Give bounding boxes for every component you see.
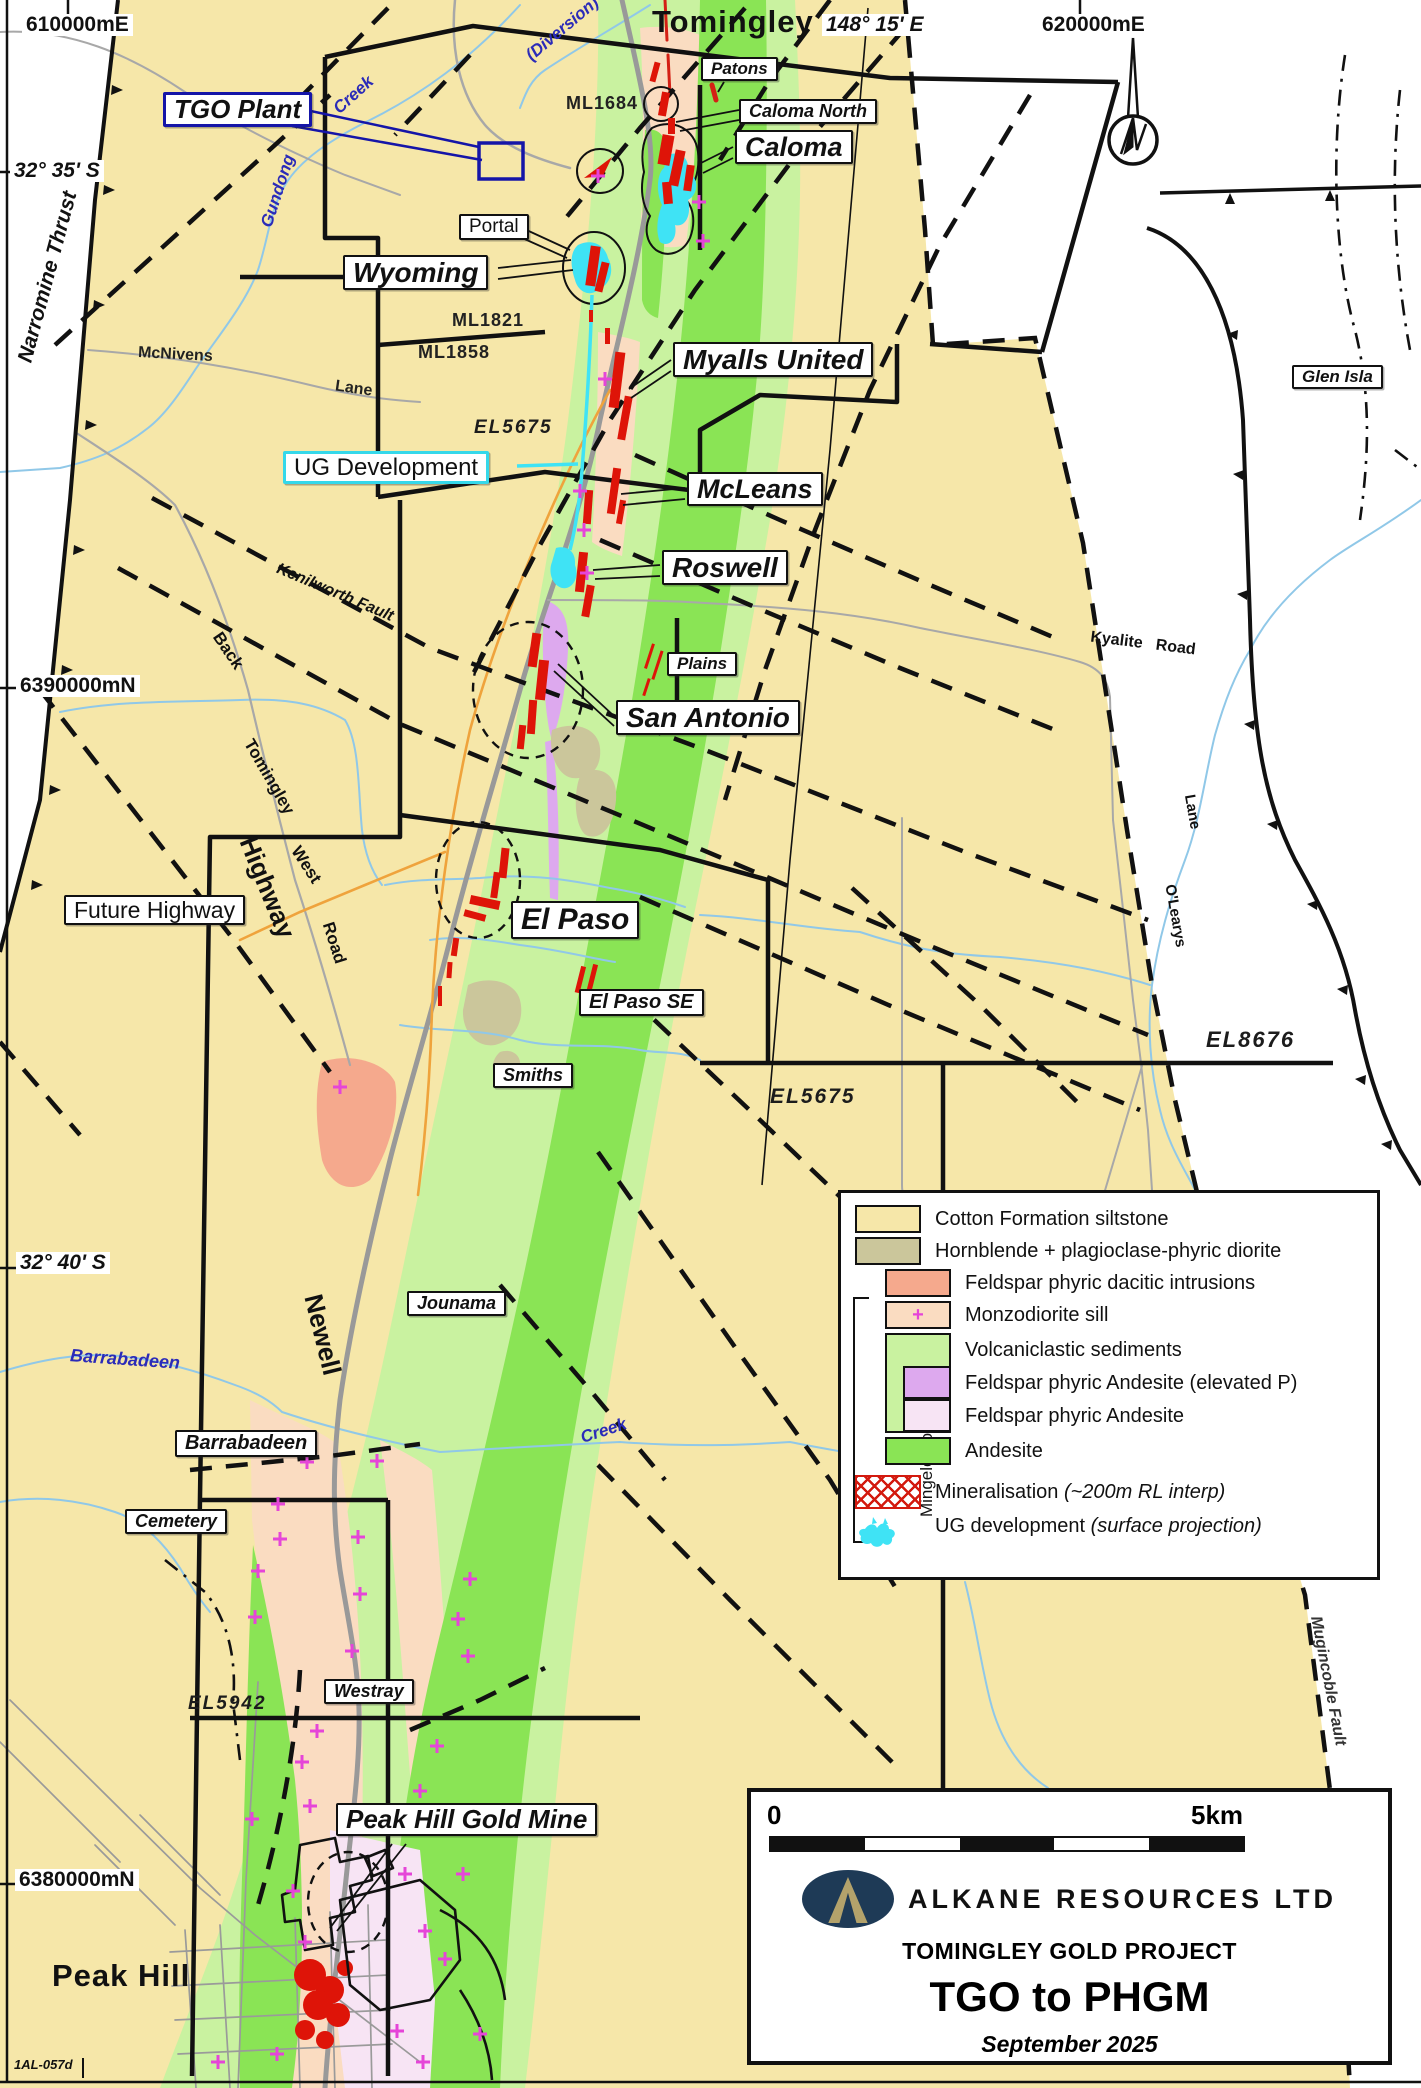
map-title: TGO to PHGM [751, 1973, 1388, 2021]
label-cemetery: Cemetery [125, 1509, 227, 1534]
label-peak-hill-gold-mine: Peak Hill Gold Mine [336, 1803, 597, 1836]
label-westray: Westray [324, 1679, 414, 1704]
scale-bar-row: 0 5km [751, 1792, 1388, 1856]
label-barrabadeen: Barrabadeen [175, 1430, 317, 1457]
legend-label-feldspar-andesite: Feldspar phyric Andesite [965, 1400, 1297, 1433]
swatch-andesite [885, 1437, 951, 1465]
legend-row-andesite: Andesite [885, 1437, 1367, 1465]
swatch-cotton [855, 1205, 921, 1233]
legend-row-volcaniclastic-stack: Volcaniclastic sediments Feldspar phyric… [885, 1333, 1367, 1433]
label-caloma: Caloma [735, 130, 853, 164]
ug-label-connector [517, 464, 578, 466]
legend-label-mineralisation: Mineralisation (~200m RL interp) [935, 1481, 1225, 1504]
label-smiths: Smiths [493, 1063, 573, 1088]
legend-row-dacitic: Feldspar phyric dacitic intrusions [885, 1269, 1367, 1297]
grid-northing-south: 6380000mN [15, 1869, 139, 1891]
label-patons: Patons [701, 57, 778, 81]
legend-row-mineralisation: Mineralisation (~200m RL interp) [855, 1475, 1367, 1509]
legend-row-hornblende: Hornblende + plagioclase-phyric diorite [855, 1237, 1367, 1265]
grid-easting-east: 620000mE [1038, 14, 1149, 36]
tenement-el8676: EL8676 [1206, 1028, 1295, 1051]
company-name: ALKANE RESOURCES LTD [908, 1884, 1337, 1915]
legend-label-hornblende: Hornblende + plagioclase-phyric diorite [935, 1240, 1281, 1263]
map-date: September 2025 [751, 2031, 1388, 2058]
label-el-paso: El Paso [511, 901, 639, 939]
tenement-ml1684: ML1684 [566, 94, 638, 113]
grid-northing-north: 6390000mN [16, 675, 140, 697]
label-plains: Plains [667, 652, 737, 676]
map-footnote: 1AL-057d [14, 2058, 73, 2072]
scale-start-label: 0 [767, 1800, 781, 1831]
alkane-logo-icon [802, 1870, 894, 1928]
legend-row-monzodiorite: + Monzodiorite sill [885, 1301, 1367, 1329]
tenement-el5675-north: EL5675 [474, 418, 553, 438]
label-caloma-north: Caloma North [739, 99, 877, 124]
legend-label-dacitic: Feldspar phyric dacitic intrusions [965, 1272, 1255, 1295]
legend-label-cotton: Cotton Formation siltstone [935, 1208, 1168, 1231]
swatch-dacitic [885, 1269, 951, 1297]
label-roswell: Roswell [662, 550, 788, 585]
label-san-antonio: San Antonio [616, 700, 800, 735]
label-myalls-united: Myalls United [673, 342, 873, 377]
label-jounama: Jounama [407, 1291, 506, 1316]
grid-lat-north: 32° 35' S [10, 160, 104, 182]
label-wyoming: Wyoming [343, 255, 488, 290]
label-ug-development: UG Development [283, 451, 489, 484]
legend-label-andesite: Andesite [965, 1440, 1043, 1463]
project-name: TOMINGLEY GOLD PROJECT [751, 1938, 1388, 1965]
tenement-ml1821: ML1821 [452, 311, 524, 330]
legend-label-monzodiorite: Monzodiorite sill [965, 1304, 1108, 1327]
title-block: 0 5km ALKANE RESOURCES LTD TOMINGLEY GOL… [747, 1788, 1392, 2065]
ug-development-swatch-icon [855, 1515, 901, 1549]
swatch-hornblende [855, 1237, 921, 1265]
swatch-andesite-elevated [903, 1366, 951, 1399]
swatch-monzodiorite: + [885, 1301, 951, 1329]
grid-lat-south: 32° 40' S [16, 1252, 110, 1274]
town-peak-hill: Peak Hill [52, 1960, 190, 1993]
map-stage: 610000mE 620000mE 148° 15' E 32° 35' S 6… [0, 0, 1421, 2088]
legend-row-cotton: Cotton Formation siltstone [855, 1205, 1367, 1233]
legend-box: Mingelo Volcanics Cotton Formation silts… [838, 1190, 1380, 1580]
legend-row-ug: UG development (surface projection) [855, 1515, 1367, 1538]
tenement-el5942: EL5942 [188, 1694, 267, 1714]
grid-longitude: 148° 15' E [822, 14, 927, 36]
tenement-el5675-south: EL5675 [770, 1086, 856, 1108]
label-mcleans: McLeans [687, 472, 823, 506]
swatch-mineralisation [855, 1475, 921, 1509]
brand-row: ALKANE RESOURCES LTD [751, 1870, 1388, 1928]
scale-bar [769, 1836, 1245, 1852]
legend-label-ug: UG development (surface projection) [935, 1515, 1262, 1538]
legend-label-volcaniclastic: Volcaniclastic sediments [965, 1334, 1297, 1367]
label-el-paso-se: El Paso SE [579, 989, 704, 1016]
legend-label-andesite-elevated: Feldspar phyric Andesite (elevated P) [965, 1367, 1297, 1400]
label-future-highway: Future Highway [64, 895, 245, 925]
grid-easting-west: 610000mE [22, 14, 133, 36]
swatch-volcaniclastic-stack [885, 1333, 951, 1433]
tenement-ml1858: ML1858 [418, 343, 490, 362]
swatch-feldspar-andesite [903, 1399, 951, 1432]
label-portal: Portal [459, 214, 529, 240]
town-tomingley: Tomingley [652, 6, 814, 39]
label-glen-isla: Glen Isla [1292, 365, 1383, 389]
label-tgo-plant: TGO Plant [163, 92, 312, 127]
scale-end-label: 5km [1191, 1800, 1243, 1831]
